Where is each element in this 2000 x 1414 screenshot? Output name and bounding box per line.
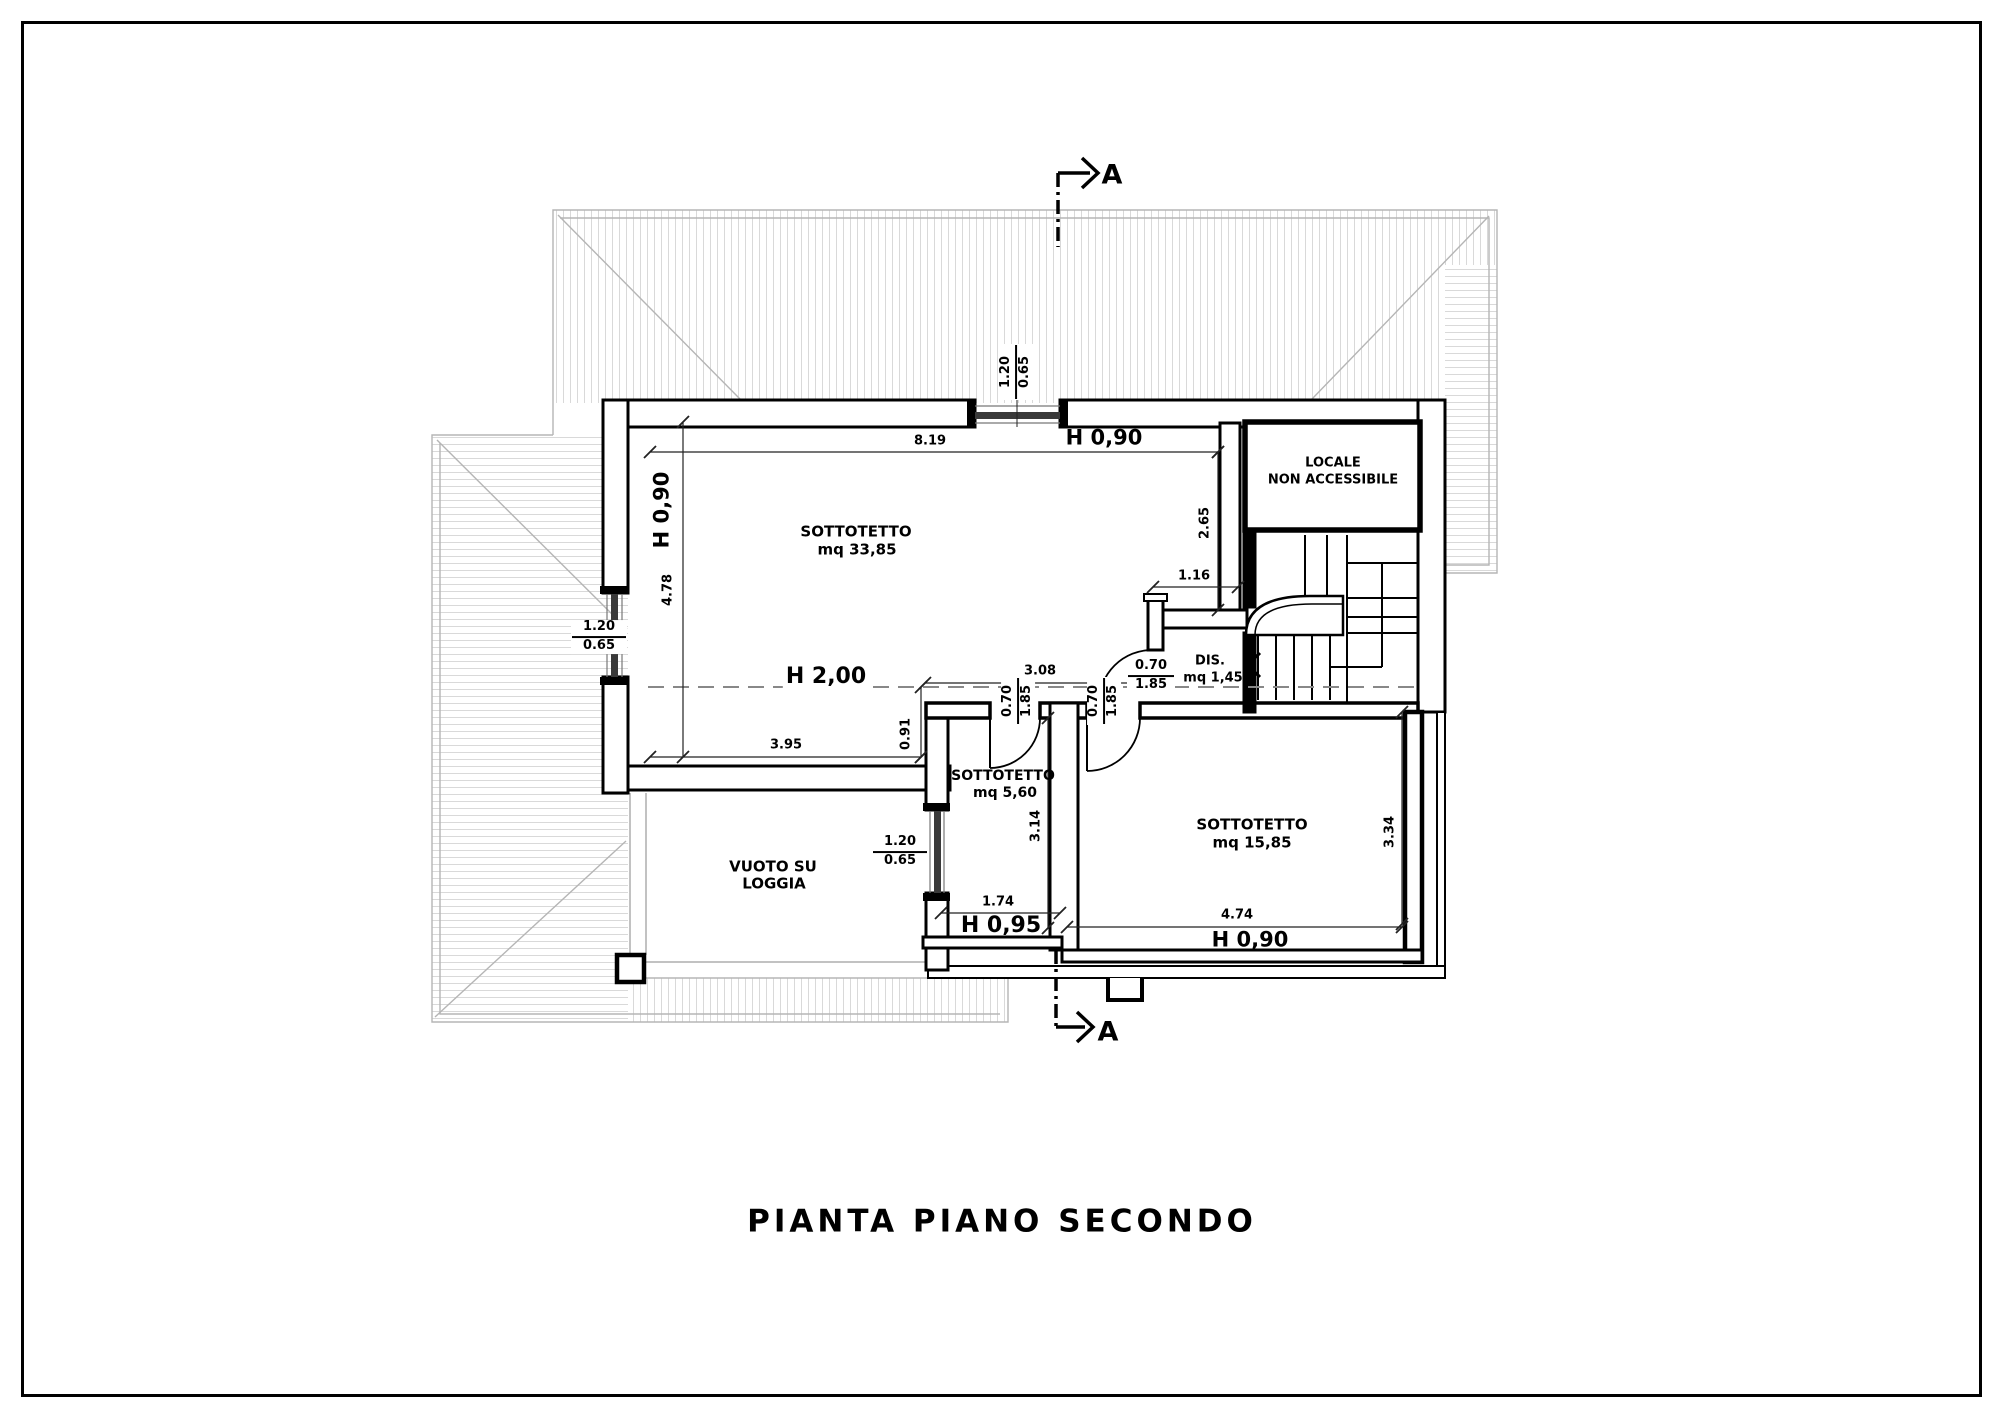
- height-note-mid: H 2,00: [783, 666, 869, 688]
- window-height-value: 0.65: [884, 854, 916, 869]
- door-width-value: 0.70: [1087, 685, 1102, 717]
- loggia-label-line1: VUOTO SU: [729, 860, 817, 875]
- dim-right-room-height: 3.34: [1384, 813, 1397, 851]
- room-small-area: mq 5,60: [973, 786, 1037, 800]
- window-width-value: 1.20: [583, 620, 615, 635]
- window-size-label-left: 1.20 0.65: [571, 620, 627, 654]
- dim-top-width: 8.19: [914, 435, 946, 448]
- door-height-value: 1.85: [1020, 685, 1035, 717]
- section-marker-bottom: [1056, 950, 1093, 1042]
- dim-bottom-left-width: 3.95: [770, 739, 802, 752]
- staircase: [1246, 535, 1418, 703]
- dim-left-height: 4.78: [662, 574, 675, 606]
- dim-right-height: 2.65: [1199, 507, 1212, 539]
- window-size-label-top: 1.20 0.65: [999, 344, 1033, 400]
- room-right-area: mq 15,85: [1212, 836, 1291, 851]
- dim-small-room-width: 1.74: [982, 896, 1014, 909]
- door-height-value: 1.85: [1135, 678, 1167, 693]
- height-note-left: H 0,90: [652, 472, 673, 549]
- section-letter-top: A: [1102, 162, 1123, 189]
- drawing-sheet: A A SOTTOTETTO mq 33,85 SOTTOTETTO mq 5,…: [0, 0, 2000, 1414]
- height-note-small: H 0,95: [961, 915, 1041, 937]
- door-size-label-dis: 0.70 1.85: [1127, 659, 1175, 693]
- door-width-value: 0.70: [1001, 685, 1016, 717]
- room-locale-line2: NON ACCESSIBILE: [1268, 474, 1398, 487]
- dim-small-room-height: 3.14: [1030, 807, 1043, 845]
- room-dis-name: DIS.: [1195, 655, 1225, 668]
- window-height-value: 0.65: [583, 639, 615, 654]
- drawing-title: PIANTA PIANO SECONDO: [747, 1207, 1257, 1238]
- door-height-value: 1.85: [1106, 685, 1121, 717]
- room-right-name: SOTTOTETTO: [1196, 818, 1307, 833]
- door-size-label-small: 0.70 1.85: [1001, 677, 1035, 725]
- height-note-bottom: H 0,90: [1212, 930, 1289, 951]
- section-letter-bottom: A: [1098, 1019, 1119, 1046]
- room-main-area: mq 33,85: [817, 543, 896, 558]
- dim-niche: 1.16: [1178, 570, 1210, 583]
- window-width-value: 1.20: [999, 356, 1014, 388]
- room-dis-area: mq 1,45: [1183, 672, 1242, 685]
- window-height-value: 0.65: [1018, 356, 1033, 388]
- dim-right-room-width: 4.74: [1221, 909, 1253, 922]
- dim-mid-width: 3.08: [1021, 665, 1059, 678]
- door-width-value: 0.70: [1135, 659, 1167, 674]
- height-note-top: H 0,90: [1066, 428, 1143, 449]
- dim-step: 0.91: [900, 718, 913, 750]
- loggia-label-line2: LOGGIA: [742, 877, 806, 892]
- door-size-label-right: 0.70 1.85: [1087, 677, 1121, 725]
- room-small-name: SOTTOTETTO: [951, 769, 1055, 783]
- window-width-value: 1.20: [884, 835, 916, 850]
- room-main-name: SOTTOTETTO: [800, 525, 911, 540]
- window-size-label-loggia: 1.20 0.65: [872, 835, 928, 869]
- loggia-column: [617, 955, 644, 982]
- room-locale-line1: LOCALE: [1305, 457, 1361, 470]
